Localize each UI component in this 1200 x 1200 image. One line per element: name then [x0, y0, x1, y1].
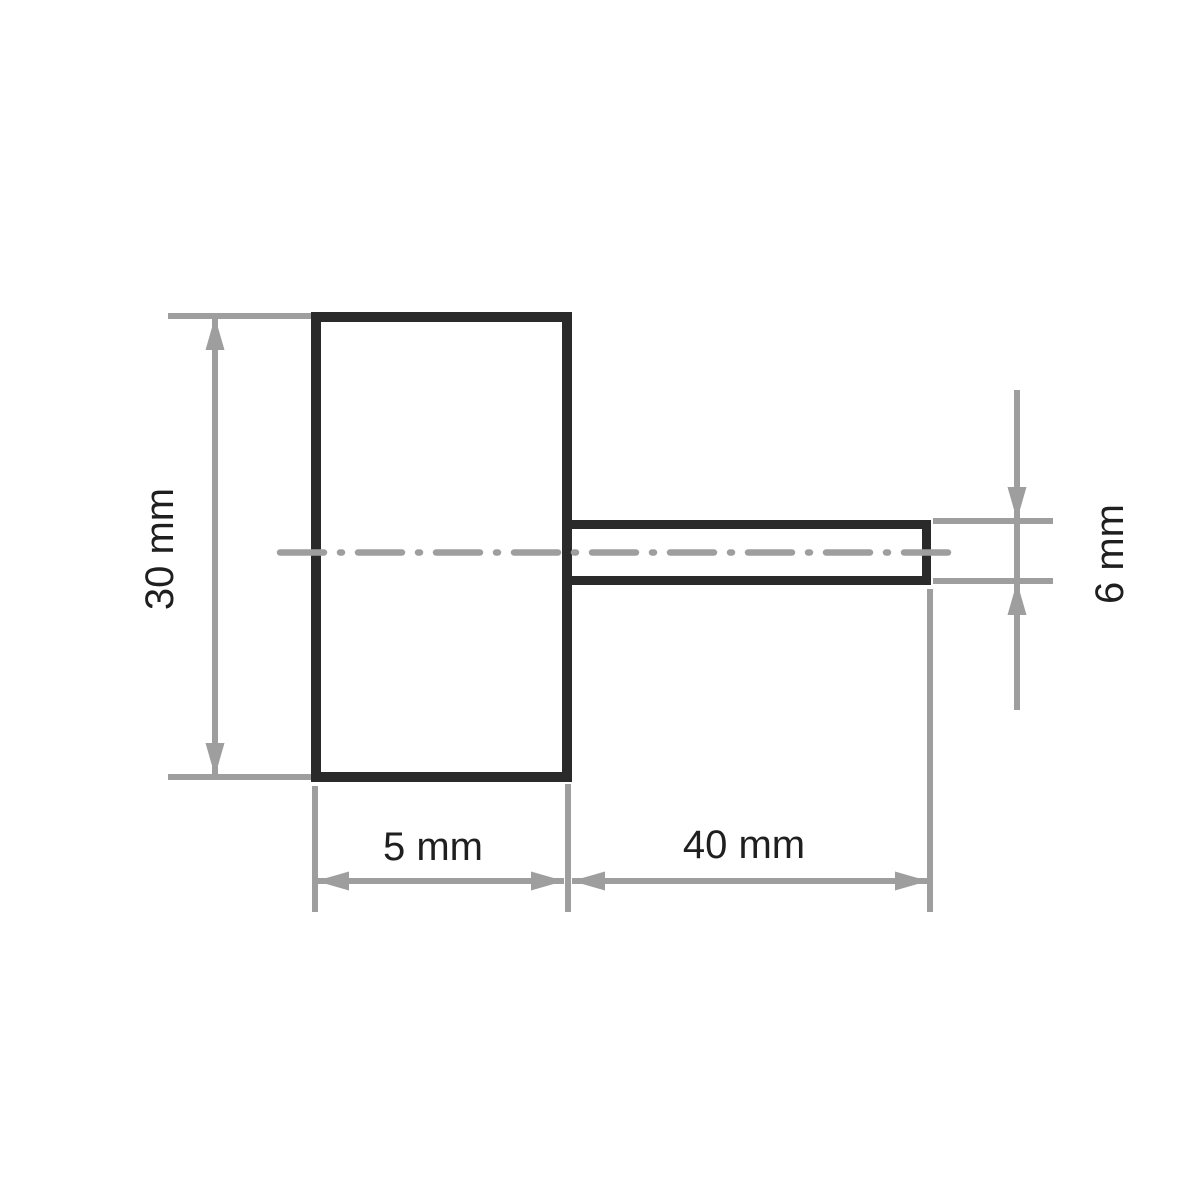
dimension-label-40mm: 40 mm	[683, 823, 805, 867]
arrowhead-up-icon	[1008, 582, 1027, 615]
dimension-drawing: 30 mm 5 mm 40 mm 6 mm	[0, 0, 1200, 1200]
arrowhead-left-icon	[316, 872, 349, 891]
dimension-6mm: 6 mm	[933, 390, 1132, 710]
arrowhead-down-icon	[1008, 487, 1027, 520]
wheel-body	[316, 317, 567, 777]
dimension-label-6mm: 6 mm	[1088, 504, 1132, 604]
arrowhead-right-icon	[895, 872, 928, 891]
dimension-label-5mm: 5 mm	[383, 825, 483, 869]
dimension-label-30mm: 30 mm	[138, 488, 182, 610]
drawing-canvas: 30 mm 5 mm 40 mm 6 mm	[0, 0, 1200, 1200]
arrowhead-down-icon	[206, 743, 225, 776]
dimension-5mm: 5 mm	[315, 784, 568, 912]
dimension-40mm: 40 mm	[572, 589, 930, 912]
arrowhead-right-icon	[531, 872, 564, 891]
arrowhead-left-icon	[572, 872, 605, 891]
dimension-30mm: 30 mm	[138, 316, 311, 777]
arrowhead-up-icon	[206, 317, 225, 350]
